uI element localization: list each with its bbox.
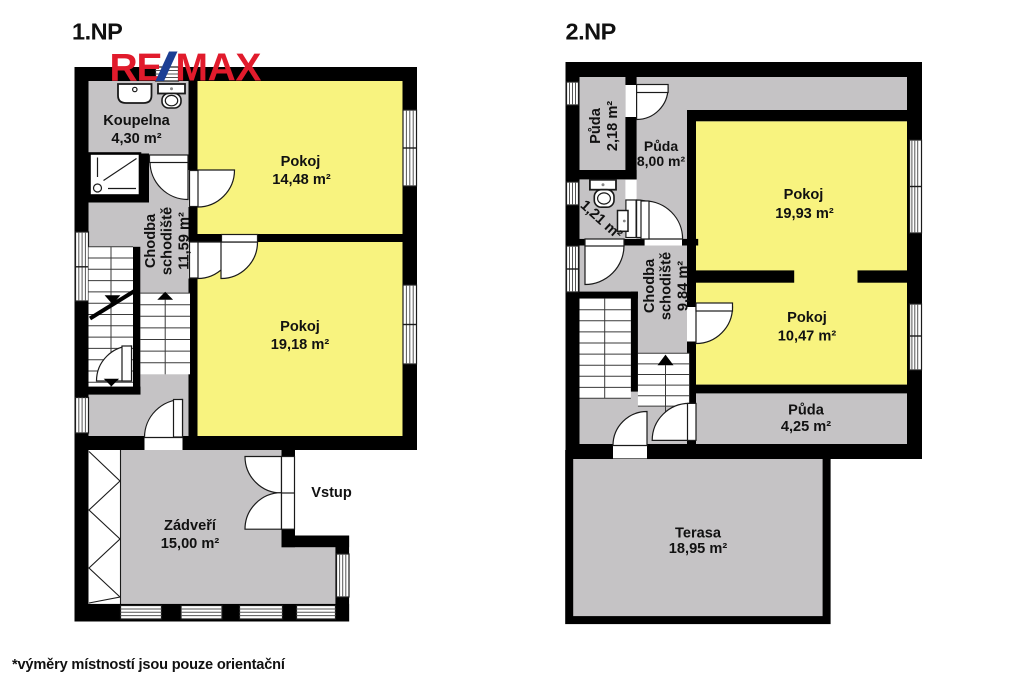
svg-text:Chodbaschodiště9,84 m²: Chodbaschodiště9,84 m²: [642, 252, 692, 320]
svg-text:10,47 m²: 10,47 m²: [778, 329, 837, 345]
svg-text:RE: RE: [110, 47, 162, 90]
svg-text:Pokoj: Pokoj: [787, 310, 827, 326]
svg-text:19,93 m²: 19,93 m²: [775, 206, 834, 222]
svg-text:1.NP: 1.NP: [72, 19, 122, 45]
svg-text:4,25 m²: 4,25 m²: [781, 419, 831, 435]
svg-text:14,48 m²: 14,48 m²: [272, 172, 331, 188]
svg-text:MAX: MAX: [176, 47, 262, 90]
svg-text:Pokoj: Pokoj: [784, 187, 824, 203]
svg-text:8,00 m²: 8,00 m²: [637, 153, 686, 169]
svg-text:Pokoj: Pokoj: [281, 154, 321, 170]
svg-text:Půda: Půda: [788, 403, 825, 419]
svg-text:Pokoj: Pokoj: [280, 319, 320, 335]
svg-text:Chodbaschodiště11,59 m²: Chodbaschodiště11,59 m²: [143, 207, 193, 275]
svg-text:19,18 m²: 19,18 m²: [271, 337, 330, 353]
svg-text:*výměry místností jsou pouze o: *výměry místností jsou pouze orientační: [12, 657, 286, 673]
svg-text:2.NP: 2.NP: [566, 19, 616, 45]
svg-text:Půda: Půda: [644, 138, 678, 154]
svg-text:Koupelna: Koupelna: [103, 113, 170, 129]
svg-text:Vstup: Vstup: [311, 485, 352, 501]
svg-text:Půda2,18 m²: Půda2,18 m²: [588, 101, 621, 151]
svg-text:4,30 m²: 4,30 m²: [111, 131, 161, 147]
svg-text:Zádveří: Zádveří: [164, 518, 217, 534]
svg-text:15,00 m²: 15,00 m²: [161, 536, 220, 552]
svg-text:18,95 m²: 18,95 m²: [669, 541, 728, 557]
svg-text:Terasa: Terasa: [675, 526, 722, 542]
